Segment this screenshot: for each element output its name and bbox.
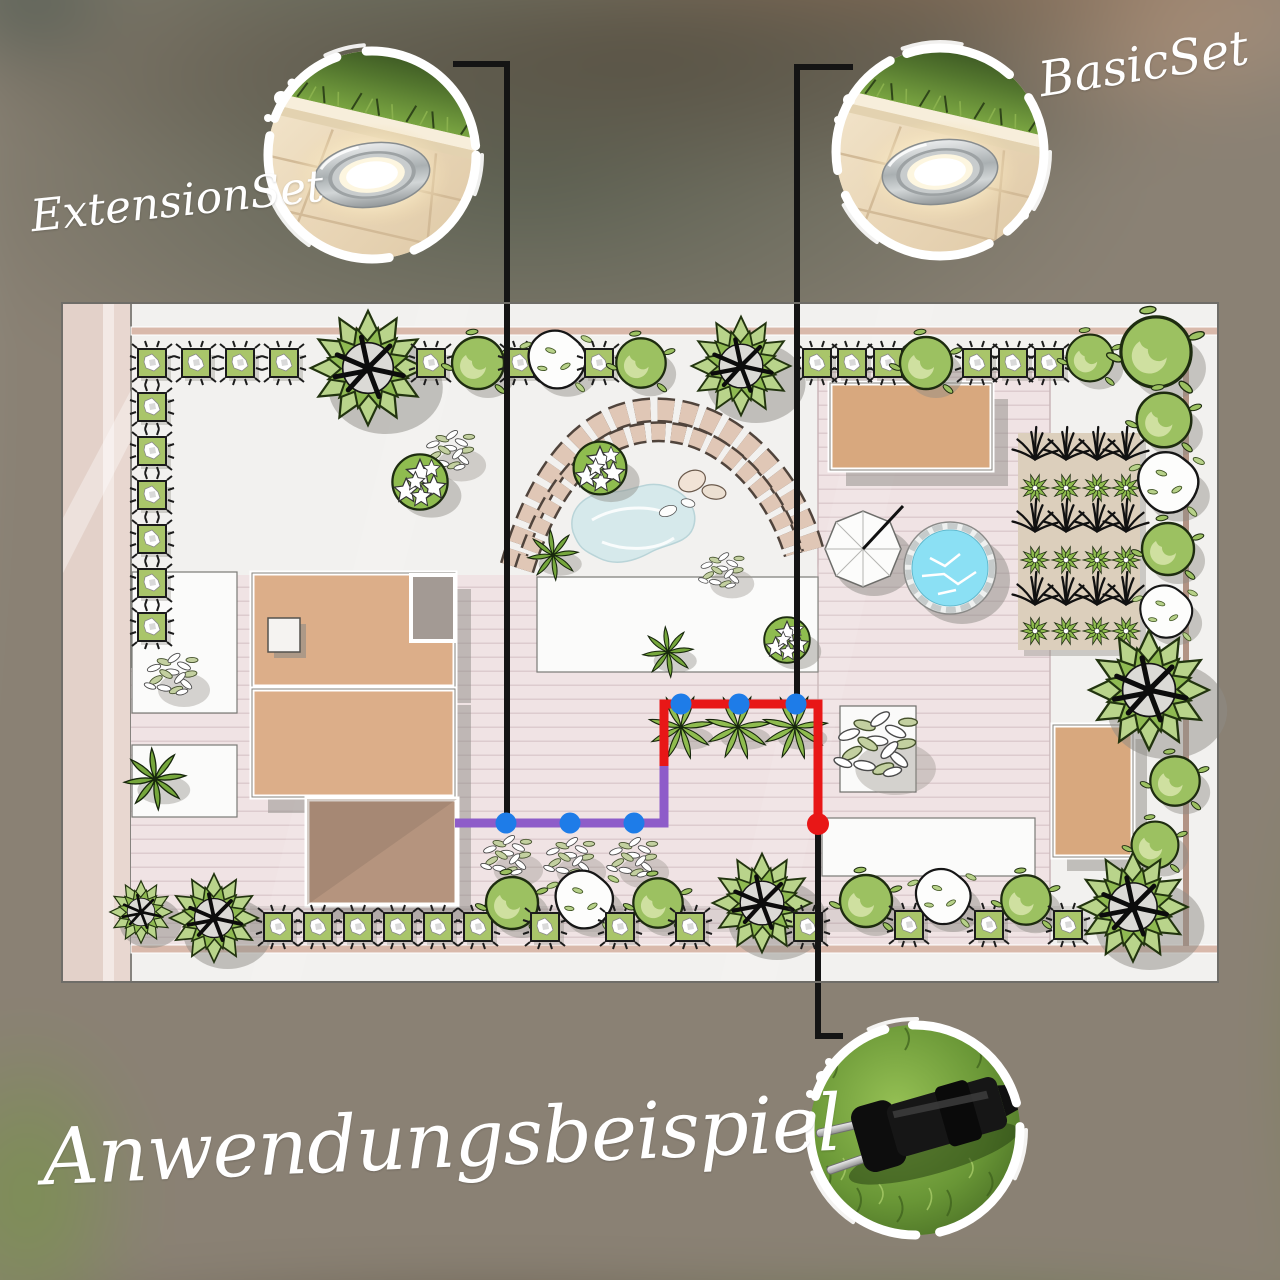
light-marker (560, 813, 581, 834)
skylight (268, 618, 306, 658)
terrace-rug (830, 383, 1008, 486)
inset-basic-set-photo (791, 2, 1090, 297)
light-marker (729, 694, 750, 715)
light-marker (671, 694, 692, 715)
house-room (252, 689, 455, 797)
light-marker (786, 694, 807, 715)
left-wall (62, 303, 132, 982)
house-terrace (411, 575, 455, 641)
plug-connection-marker (807, 813, 829, 835)
light-marker (624, 813, 645, 834)
vegetable-bed (1013, 427, 1149, 656)
inset-extension-set-photo (223, 5, 522, 300)
light-marker (496, 813, 517, 834)
poster: ExtensionSet BasicSet Anwendungsbeispiel (0, 0, 1280, 1280)
